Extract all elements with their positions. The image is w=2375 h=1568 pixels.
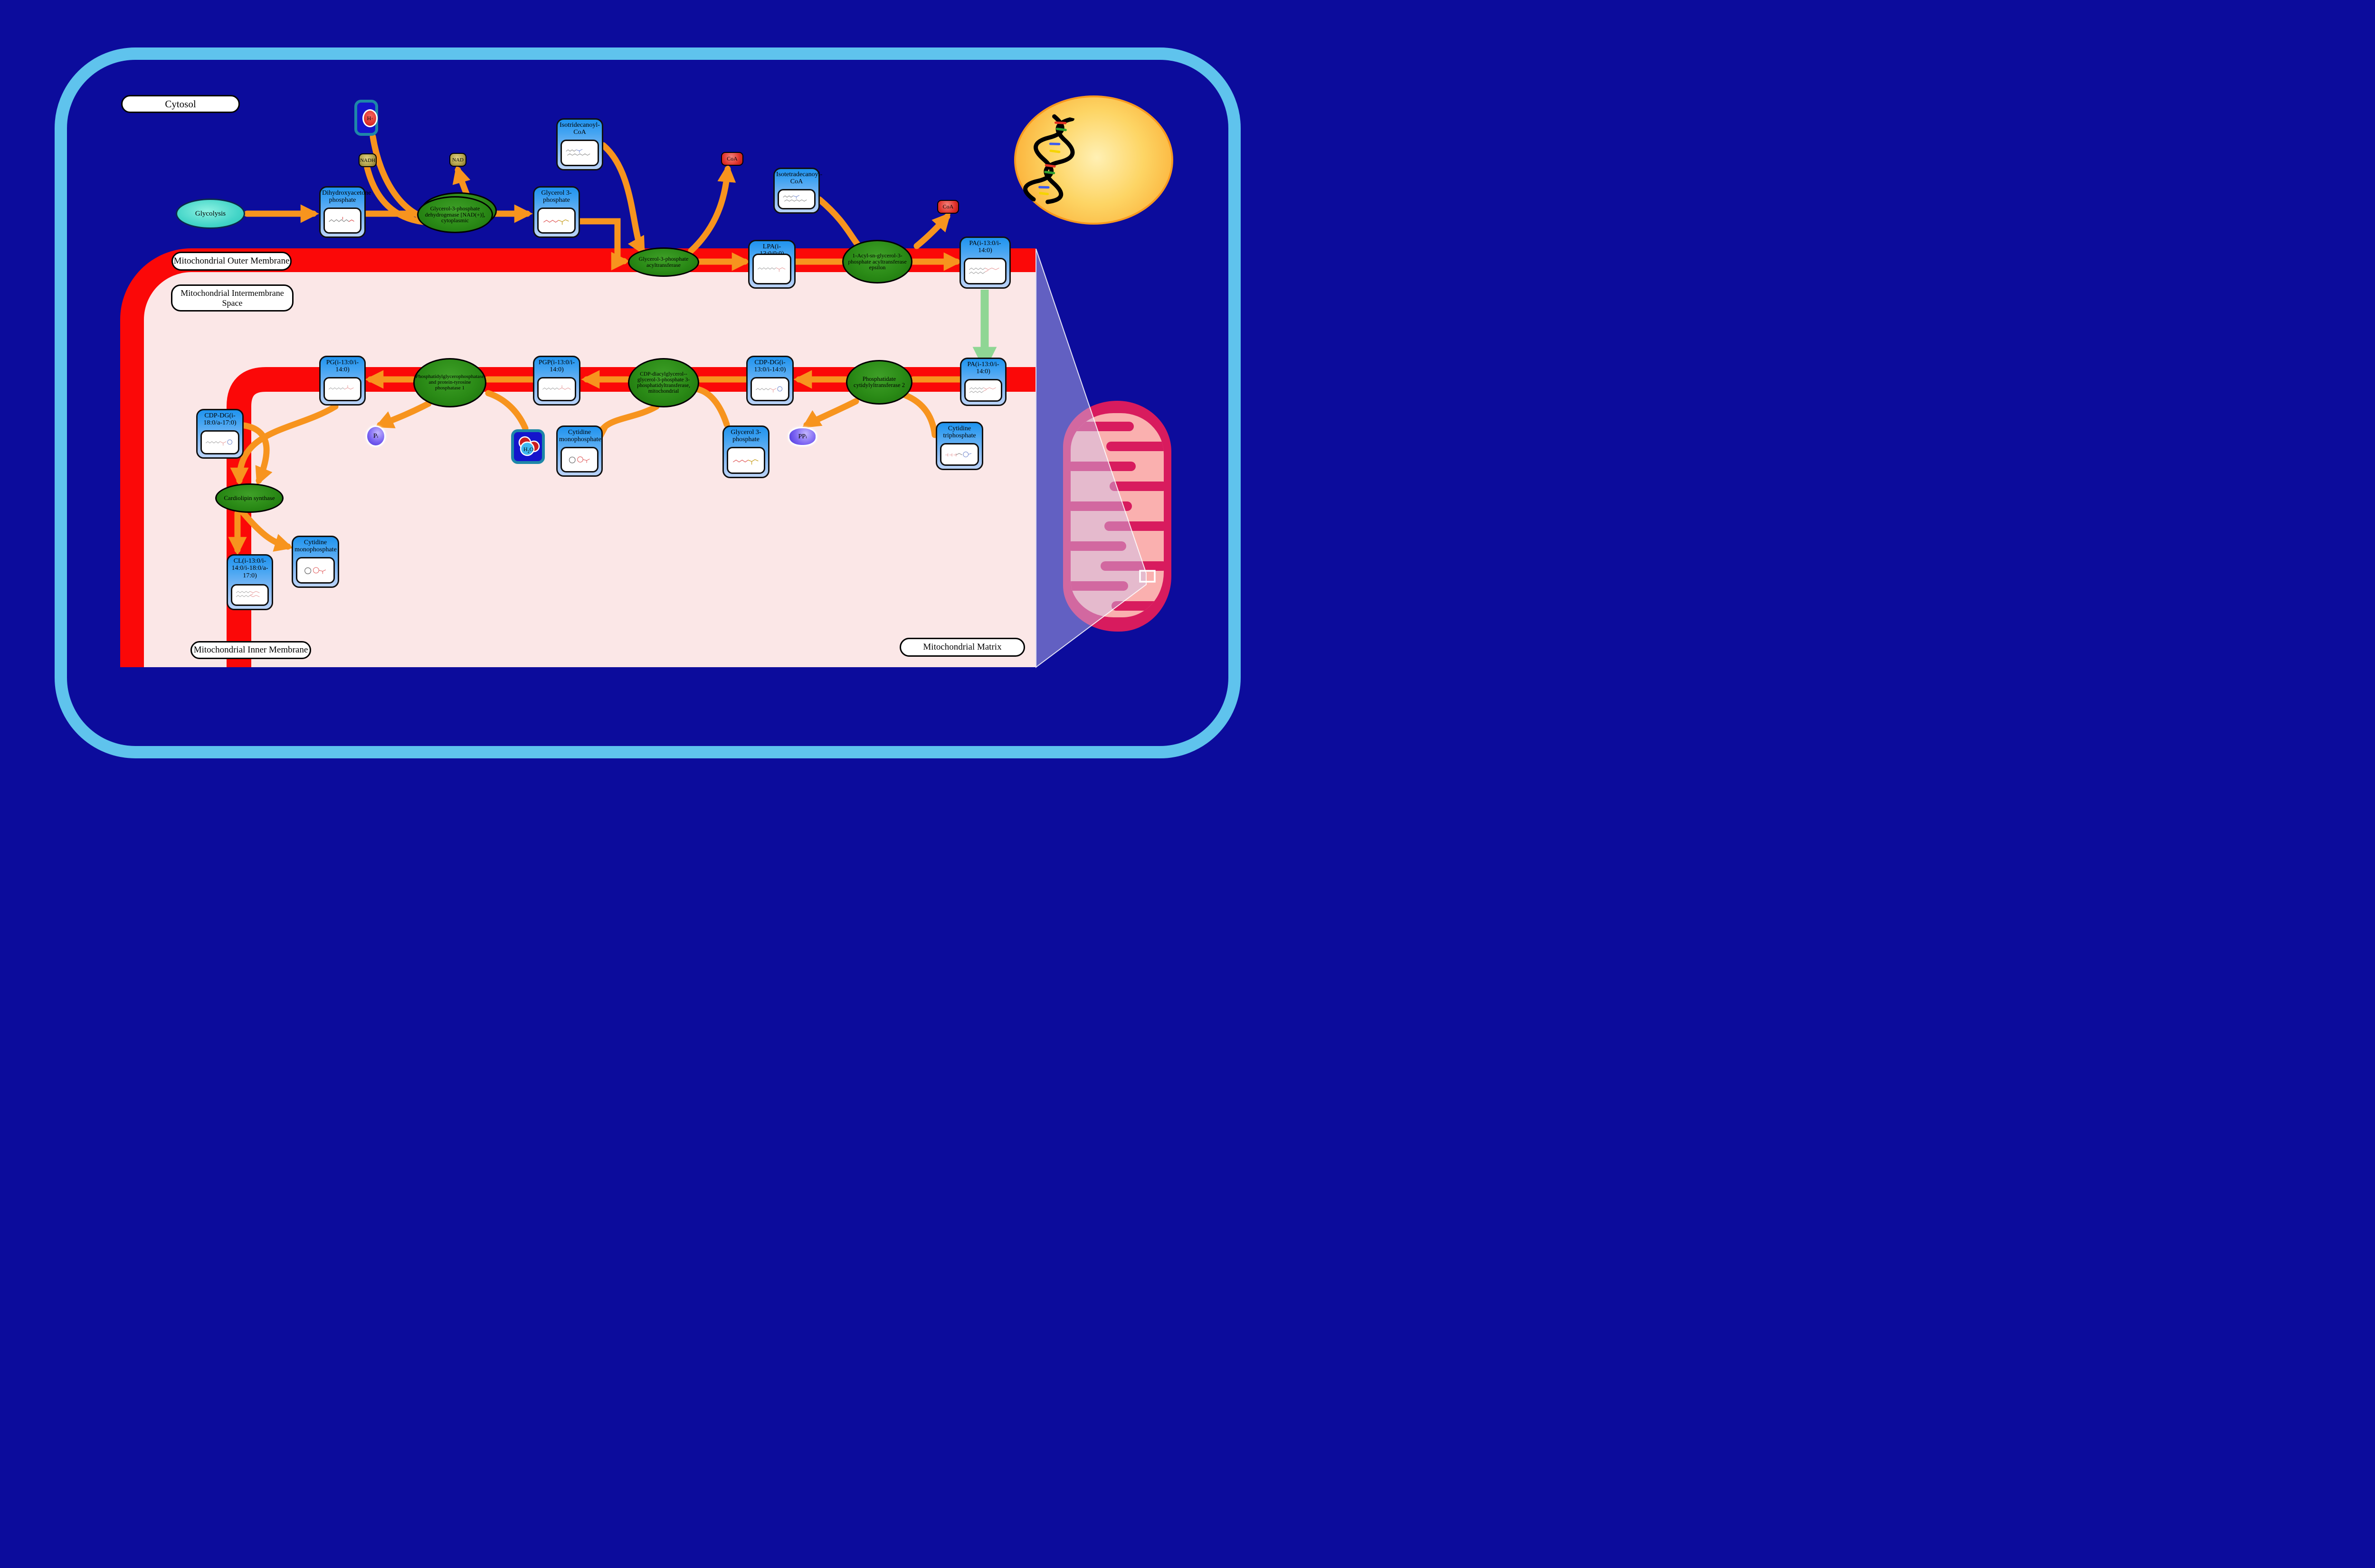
nadh-label: NADH [360, 158, 375, 163]
iso13coa-label: Isotridecanoyl-CoA [558, 120, 602, 136]
pg-label: PG(i-13:0/i-14:0) [321, 357, 364, 374]
node-cdpdg2[interactable]: CDP-DG(i-18:0/a-17:0) [196, 409, 244, 459]
crista [1071, 501, 1132, 511]
enzyme-agpat-epsilon[interactable]: 1-Acyl-sn-glycerol-3-phosphate acyltrans… [842, 240, 912, 283]
cytosol-label: Cytosol [165, 98, 196, 110]
pgs1-label: CDP-diacylglycerol--glycerol-3-phosphate… [631, 371, 696, 394]
molecule-structure-icon [541, 214, 572, 227]
crista [1101, 561, 1164, 571]
compartment-label-intermembrane-space: Mitochondrial Intermembrane Space [171, 284, 294, 312]
pgp-label: PGP(i-13:0/i-14:0) [534, 357, 579, 374]
badge-coa-1[interactable]: CoA [721, 152, 743, 166]
cl-structure [231, 584, 269, 606]
crista [1071, 422, 1134, 431]
g3p-structure [727, 447, 765, 474]
pa-label: PA(i-13:0/i-14:0) [961, 238, 1009, 255]
h-plus-token: H+ [362, 109, 378, 127]
cdpdg2-structure [200, 430, 239, 454]
enzyme-gpat[interactable]: Glycerol-3-phosphate acyltransferase [628, 247, 699, 277]
molecule-structure-icon [731, 454, 761, 467]
crista [1071, 581, 1128, 591]
cmp-structure [296, 557, 335, 584]
crista [1071, 541, 1126, 551]
cdpdg2-label: CDP-DG(i-18:0/a-17:0) [198, 410, 242, 427]
ppi-sub: i [806, 435, 807, 439]
enzyme-cardiolipin-synthase[interactable]: Cardiolipin synthase [215, 483, 284, 513]
gpd-label: Glycerol-3-phosphate dehydrogenase [NAD(… [420, 206, 490, 224]
pa-label: PA(i-13:0/i-14:0) [961, 359, 1005, 376]
badge-nadh[interactable]: NADH [359, 153, 377, 167]
mitochondrion-illustration [1063, 401, 1171, 632]
crista [1111, 601, 1164, 611]
molecule-structure-icon [205, 436, 236, 449]
h-plus-sup: + [371, 116, 373, 121]
g3p-structure [537, 208, 576, 234]
cmp-structure [560, 447, 598, 472]
molecule-structure-icon [565, 147, 595, 160]
molecule-structure-icon [944, 448, 975, 461]
coa-label: CoA [727, 155, 738, 162]
node-cmp-left[interactable]: Cytidine monophosphate [292, 536, 339, 588]
chip-pyrophosphate[interactable]: PPi [788, 427, 817, 446]
node-cl[interactable]: CL(i-13:0/i-14:0/i-18:0/a-17:0) [227, 554, 273, 610]
badge-nad[interactable]: NAD [449, 153, 466, 167]
crls1-label: Cardiolipin synthase [224, 495, 275, 501]
ctp-structure [940, 443, 979, 466]
h-plus-label: H [367, 115, 371, 122]
cmp-label: Cytidine monophosphate [293, 537, 338, 554]
cl-label: CL(i-13:0/i-14:0/i-18:0/a-17:0) [228, 556, 272, 579]
node-h2o[interactable]: H2O [511, 429, 545, 464]
molecule-structure-icon [235, 589, 265, 601]
dhap-label: Dihydroxyacetone phosphate [321, 188, 364, 204]
molecule-structure-icon [565, 453, 595, 466]
mitochondrion-matrix-area [1071, 413, 1164, 617]
molecule-structure-icon [782, 193, 812, 205]
compartment-label-inner-membrane: Mitochondrial Inner Membrane [190, 641, 311, 659]
nucleus-illustration [1014, 95, 1173, 225]
compartment-label-cytosol: Cytosol [121, 95, 240, 113]
node-h-plus[interactable]: H+ [354, 100, 378, 136]
crista [1071, 462, 1136, 471]
agpat-label: 1-Acyl-sn-glycerol-3-phosphate acyltrans… [845, 253, 909, 271]
node-cmp-matrix[interactable]: Cytidine monophosphate [556, 425, 603, 477]
iso13coa-structure [560, 140, 599, 166]
pgp-structure [537, 377, 576, 401]
node-isotridecanoyl-coa[interactable]: Isotridecanoyl-CoA [556, 118, 603, 170]
node-pa-outer[interactable]: PA(i-13:0/i-14:0) [959, 236, 1011, 289]
intermembrane-label: Mitochondrial Intermembrane Space [177, 288, 287, 308]
glycolysis-label: Glycolysis [195, 210, 226, 218]
g3p-label: Glycerol 3-phosphate [534, 188, 579, 204]
molecule-structure-icon [300, 564, 331, 577]
enzyme-gpd[interactable]: Glycerol-3-phosphate dehydrogenase [NAD(… [417, 196, 493, 233]
chip-phosphate[interactable]: Pi [366, 425, 386, 447]
outer-membrane-label: Mitochondrial Outer Membrane [174, 256, 290, 266]
node-isotetradecanoyl-coa[interactable]: Isotetradecanoyl-CoA [773, 168, 820, 214]
coa-label: CoA [943, 203, 954, 210]
g3p-label: Glycerol 3-phosphate [724, 427, 768, 444]
enzyme-phosphatidylglycerophosphatase[interactable]: Phosphatidylglycerophosphatase and prote… [413, 358, 486, 407]
iso14coa-structure [778, 189, 816, 209]
node-pgp[interactable]: PGP(i-13:0/i-14:0) [533, 356, 580, 406]
node-pg[interactable]: PG(i-13:0/i-14:0) [319, 356, 366, 406]
crista [1106, 442, 1164, 451]
pi-sub: i [377, 434, 378, 439]
ppi-label: PP [798, 433, 806, 441]
molecule-structure-icon [541, 383, 572, 396]
node-g3p-cytosol[interactable]: Glycerol 3-phosphate [533, 186, 580, 238]
dna-helix-icon [1015, 109, 1106, 214]
gpat-label: Glycerol-3-phosphate acyltransferase [631, 256, 696, 268]
cdpdg-label: CDP-DG(i-13:0/i-14:0) [748, 357, 792, 374]
cdpdg-structure [750, 377, 789, 401]
crista [1104, 521, 1164, 531]
pathway-node-glycolysis[interactable]: Glycolysis [176, 198, 245, 229]
molecule-structure-icon [755, 383, 786, 396]
compartment-label-matrix: Mitochondrial Matrix [900, 638, 1025, 657]
dhap-structure [323, 208, 361, 234]
pi-label: P [373, 433, 377, 440]
molecule-structure-icon [968, 264, 1002, 278]
ptpmt1-label: Phosphatidylglycerophosphatase and prote… [416, 374, 484, 391]
compartment-label-outer-membrane: Mitochondrial Outer Membrane [171, 252, 292, 271]
node-g3p-matrix[interactable]: Glycerol 3-phosphate [722, 425, 769, 478]
pa-structure [964, 258, 1007, 284]
crista [1110, 482, 1164, 491]
node-pa-inner[interactable]: PA(i-13:0/i-14:0) [960, 358, 1007, 406]
molecule-structure-icon [757, 263, 788, 275]
node-dhap[interactable]: Dihydroxyacetone phosphate [319, 186, 366, 238]
inner-membrane-label: Mitochondrial Inner Membrane [194, 645, 308, 655]
cmp-label: Cytidine monophosphate [558, 427, 601, 444]
molecule-structure-icon [328, 214, 358, 227]
molecule-structure-icon [328, 383, 358, 395]
enzyme-cdp-dag-g3p-phosphatidyltransferase[interactable]: CDP-diacylglycerol--glycerol-3-phosphate… [628, 358, 699, 407]
matrix-label: Mitochondrial Matrix [923, 642, 1001, 652]
iso14coa-label: Isotetradecanoyl-CoA [775, 169, 818, 186]
molecule-structure-icon [969, 384, 998, 397]
node-lpa[interactable]: LPA(i-13:0/0:0) [748, 240, 796, 289]
lpa-structure [752, 254, 791, 284]
node-ctp[interactable]: Cytidine triphosphate [936, 422, 983, 470]
pg-structure [323, 377, 361, 401]
pcyt2-label: Phosphatidate cytidylyltransferase 2 [849, 376, 909, 389]
nad-label: NAD [452, 157, 464, 163]
ctp-label: Cytidine triphosphate [937, 423, 982, 440]
water-molecule-icon: H2O [514, 432, 542, 461]
node-cdpdg[interactable]: CDP-DG(i-13:0/i-14:0) [746, 356, 794, 406]
enzyme-phosphatidate-cytidylyltransferase-2[interactable]: Phosphatidate cytidylyltransferase 2 [846, 360, 912, 405]
pathway-diagram: Cytosol Mitochondrial Outer Membrane Mit… [0, 0, 1282, 784]
pa-structure [964, 379, 1002, 402]
badge-coa-2[interactable]: CoA [937, 200, 959, 214]
